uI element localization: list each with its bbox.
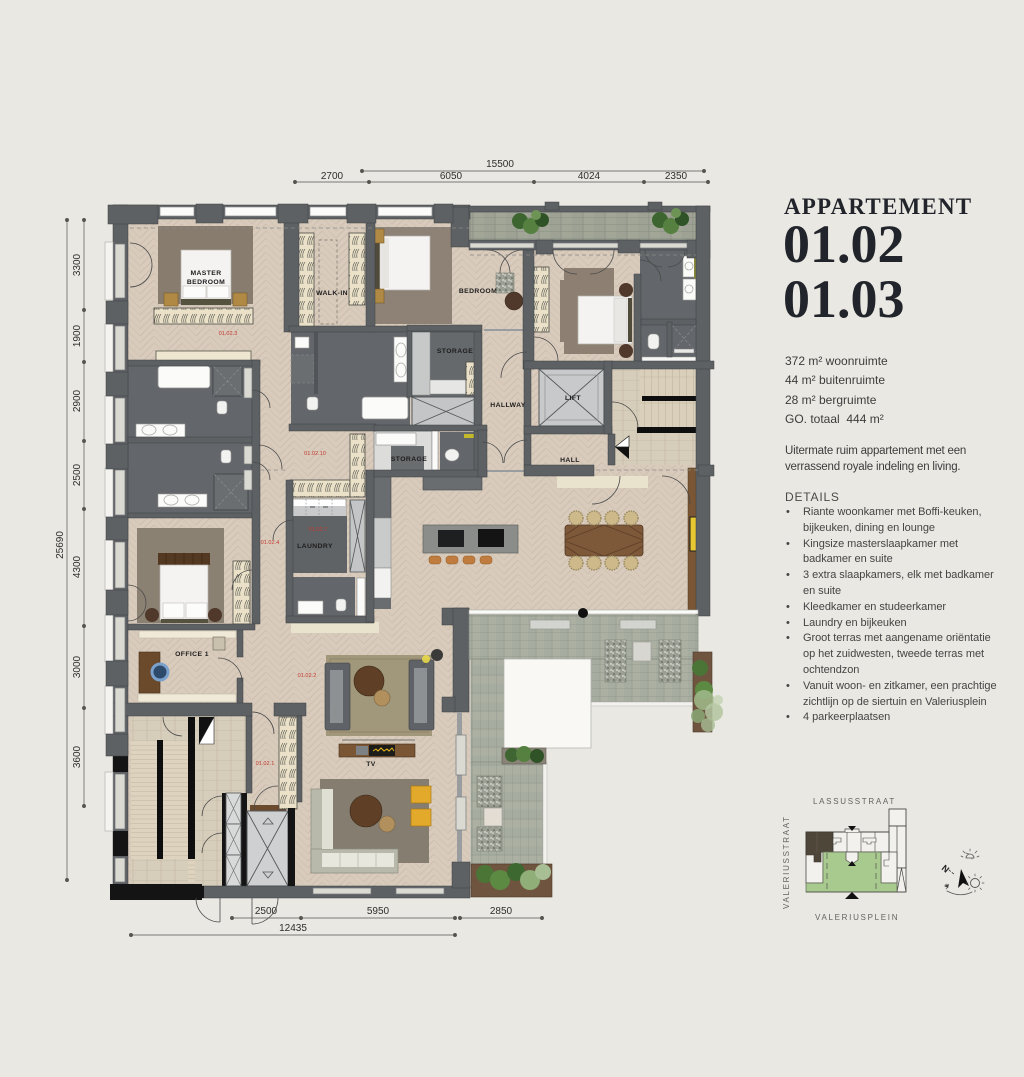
- svg-text:WALK-IN: WALK-IN: [316, 290, 348, 297]
- svg-text:LAUNDRY: LAUNDRY: [297, 543, 333, 550]
- svg-text:2900: 2900: [72, 389, 83, 412]
- svg-text:2500: 2500: [72, 463, 83, 486]
- svg-text:2350: 2350: [665, 171, 688, 182]
- svg-text:6050: 6050: [440, 171, 463, 182]
- svg-text:5950: 5950: [367, 906, 390, 917]
- svg-text:01.02.4: 01.02.4: [261, 540, 280, 546]
- svg-text:1900: 1900: [72, 324, 83, 347]
- svg-text:3300: 3300: [72, 253, 83, 276]
- svg-text:LIFT: LIFT: [565, 395, 581, 402]
- svg-text:01.02.2: 01.02.2: [298, 673, 317, 679]
- svg-text:15500: 15500: [486, 159, 514, 170]
- svg-text:01.02.1: 01.02.1: [256, 761, 275, 767]
- svg-text:12435: 12435: [279, 923, 307, 934]
- svg-text:2500: 2500: [255, 906, 278, 917]
- svg-text:01.02.3: 01.02.3: [219, 331, 238, 337]
- svg-text:2700: 2700: [321, 171, 344, 182]
- svg-text:STORAGE: STORAGE: [391, 456, 427, 463]
- svg-text:01.02.7: 01.02.7: [309, 527, 328, 533]
- svg-text:OFFICE 1: OFFICE 1: [175, 651, 209, 658]
- svg-text:3000: 3000: [72, 655, 83, 678]
- svg-text:3600: 3600: [72, 745, 83, 768]
- svg-text:2850: 2850: [490, 906, 513, 917]
- svg-text:01.02.10: 01.02.10: [304, 451, 326, 457]
- svg-text:STORAGE: STORAGE: [437, 348, 473, 355]
- svg-text:HALL: HALL: [560, 457, 580, 464]
- svg-text:HALLWAY: HALLWAY: [490, 402, 525, 409]
- svg-text:MASTER: MASTER: [190, 270, 221, 277]
- svg-text:4300: 4300: [72, 555, 83, 578]
- svg-text:BEDROOM: BEDROOM: [459, 288, 497, 295]
- svg-text:BEDROOM: BEDROOM: [187, 279, 225, 286]
- svg-text:25690: 25690: [55, 531, 66, 559]
- svg-text:TV: TV: [366, 761, 376, 768]
- svg-text:4024: 4024: [578, 171, 601, 182]
